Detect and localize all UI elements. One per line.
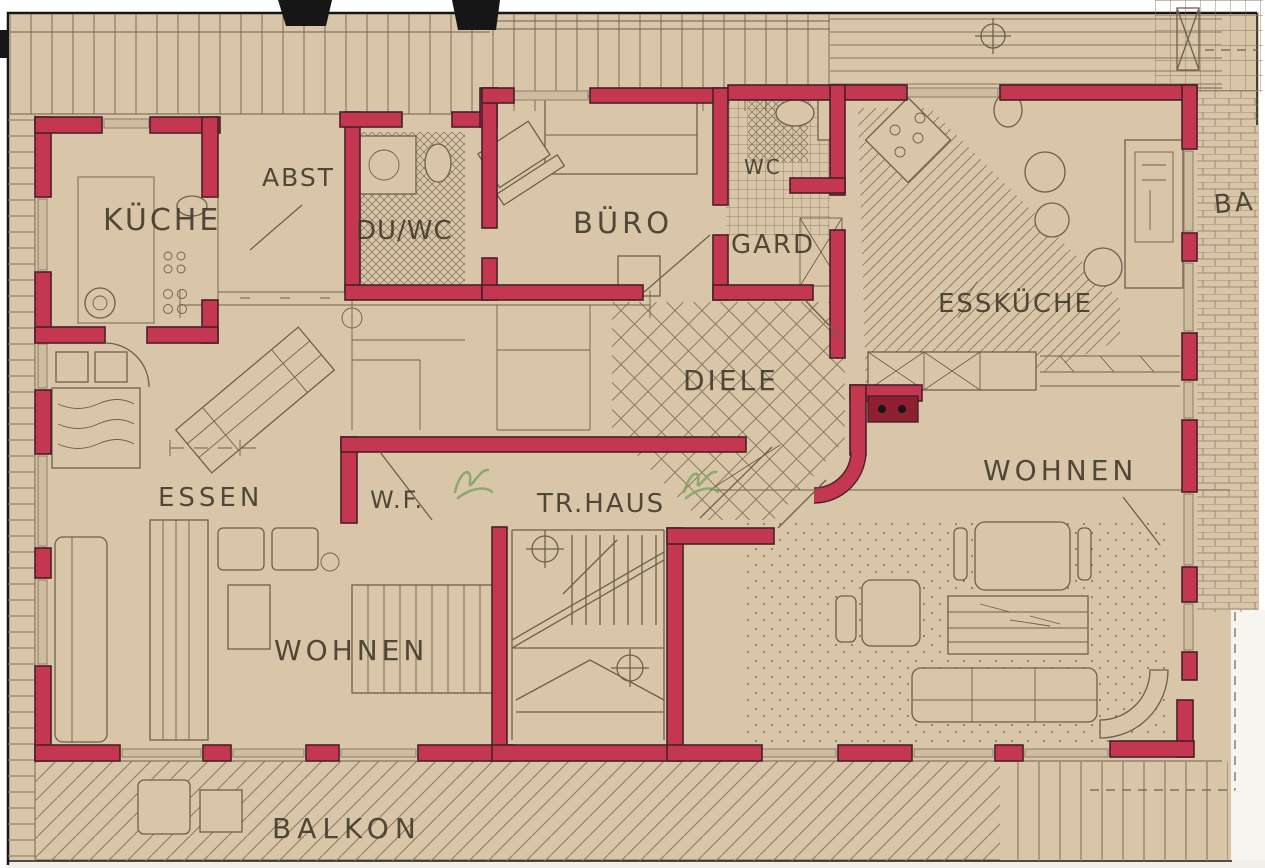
balcony-bottom-right	[1000, 762, 1228, 861]
balcony-table	[200, 790, 242, 832]
room-label-duwc: DU/WC	[356, 216, 453, 246]
room-label-diele: DIELE	[683, 364, 779, 397]
balcony-furniture	[138, 780, 190, 834]
room-label-gard: GARD	[731, 230, 815, 260]
room-label-wohnen-right: WOHNEN	[983, 454, 1137, 487]
stove-burner-symbol	[868, 396, 918, 422]
floor-plan-drawing: KÜCHE ABST DU/WC BÜRO WC GARD ESSKÜCHE D…	[0, 0, 1265, 868]
room-label-buero: BÜRO	[573, 206, 673, 240]
room-label-essen: ESSEN	[158, 483, 263, 513]
scan-edge-blob	[0, 30, 8, 58]
room-label-abst: ABST	[262, 163, 335, 192]
room-label-wc: WC	[744, 155, 782, 179]
room-label-wohnen-left: WOHNEN	[274, 634, 428, 667]
room-label-esskueche: ESSKÜCHE	[938, 287, 1093, 319]
room-label-wf: W.F.	[370, 486, 424, 514]
top-right-grid	[1155, 0, 1263, 92]
room-label-balkon: BALKON	[272, 812, 422, 845]
left-hatch-strip	[8, 115, 35, 862]
room-label-trhaus: TR.HAUS	[536, 489, 665, 519]
room-label-balkon-right: BA	[1213, 187, 1257, 221]
right-margin	[1231, 610, 1265, 868]
floor-plan-page: KÜCHE ABST DU/WC BÜRO WC GARD ESSKÜCHE D…	[0, 0, 1265, 868]
room-label-kueche: KÜCHE	[103, 202, 221, 238]
